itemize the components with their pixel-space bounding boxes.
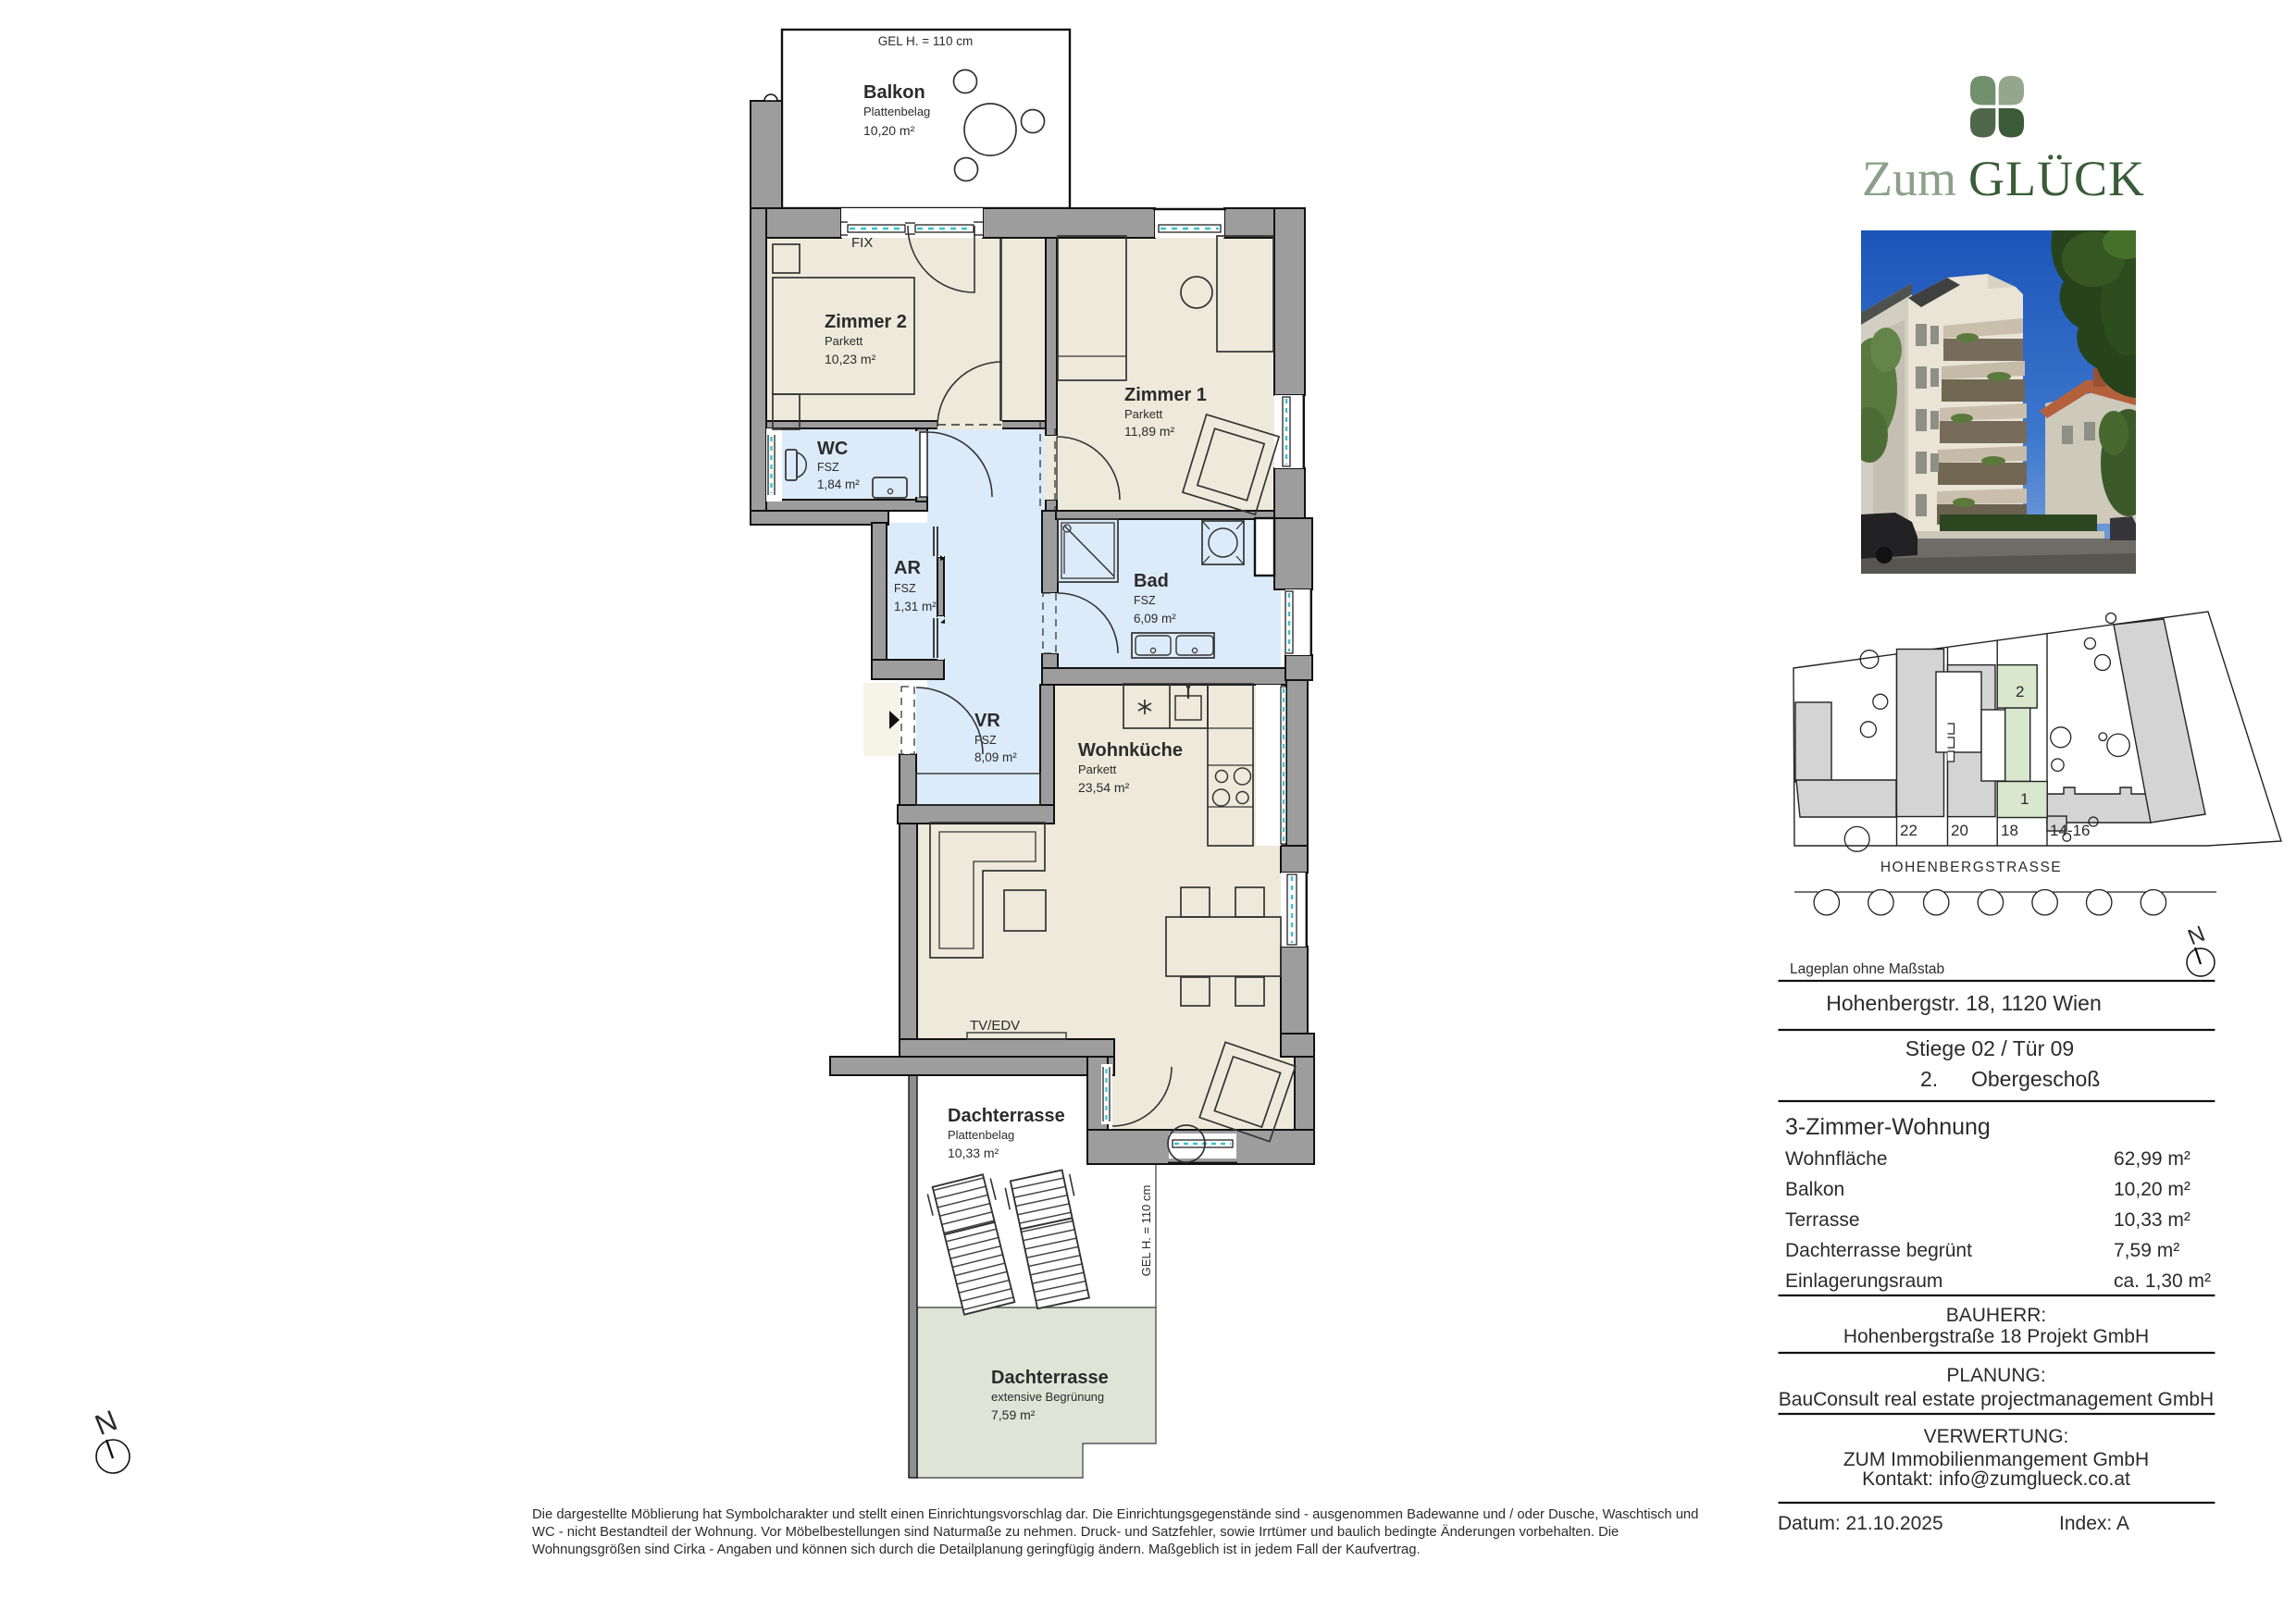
svg-text:10,33 m²: 10,33 m² bbox=[2114, 1209, 2191, 1231]
svg-text:ca. 1,30 m²: ca. 1,30 m² bbox=[2114, 1270, 2211, 1292]
svg-text:Balkon: Balkon bbox=[1785, 1179, 1844, 1200]
svg-text:2.: 2. bbox=[1920, 1067, 1938, 1091]
svg-text:10,20 m²: 10,20 m² bbox=[2114, 1179, 2191, 1200]
svg-text:Die dargestellte Möblierung ha: Die dargestellte Möblierung hat Symbolch… bbox=[532, 1507, 1698, 1522]
svg-text:62,99 m²: 62,99 m² bbox=[2114, 1148, 2191, 1170]
svg-text:Hohenbergstraße 18 Projekt Gmb: Hohenbergstraße 18 Projekt GmbH bbox=[1843, 1326, 2149, 1347]
svg-text:Einlagerungsraum: Einlagerungsraum bbox=[1785, 1270, 1942, 1292]
svg-text:Obergeschoß: Obergeschoß bbox=[1971, 1067, 2100, 1091]
svg-text:PLANUNG:: PLANUNG: bbox=[1946, 1365, 2045, 1386]
svg-text:Wohnfläche: Wohnfläche bbox=[1785, 1148, 1888, 1170]
svg-text:Dachterrasse begrünt: Dachterrasse begrünt bbox=[1785, 1240, 1972, 1261]
svg-text:Terrasse: Terrasse bbox=[1785, 1209, 1860, 1231]
svg-text:7,59 m²: 7,59 m² bbox=[2114, 1240, 2179, 1261]
svg-text:BauConsult real estate project: BauConsult real estate projectmanagement… bbox=[1779, 1389, 2214, 1410]
svg-text:Hohenbergstr. 18, 1120 Wien: Hohenbergstr. 18, 1120 Wien bbox=[1826, 991, 2101, 1015]
svg-text:WC - nicht Bestandteil der Woh: WC - nicht Bestandteil der Wohnung. Vor … bbox=[532, 1524, 1619, 1540]
svg-text:BAUHERR:: BAUHERR: bbox=[1946, 1305, 2047, 1326]
svg-text:ZUM Immobilienmangement GmbH: ZUM Immobilienmangement GmbH bbox=[1843, 1449, 2149, 1470]
svg-text:Kontakt: info@zumglueck.co.at: Kontakt: info@zumglueck.co.at bbox=[1862, 1468, 2130, 1490]
svg-text:3-Zimmer-Wohnung: 3-Zimmer-Wohnung bbox=[1785, 1114, 1991, 1140]
svg-text:Wohnungsgrößen sind Cirka - An: Wohnungsgrößen sind Cirka - Angaben und … bbox=[532, 1542, 1421, 1557]
svg-text:Index: A: Index: A bbox=[2059, 1513, 2129, 1534]
svg-text:VERWERTUNG:: VERWERTUNG: bbox=[1924, 1426, 2069, 1447]
svg-text:Stiege 02 / Tür 09: Stiege 02 / Tür 09 bbox=[1905, 1036, 2074, 1060]
svg-text:Datum: 21.10.2025: Datum: 21.10.2025 bbox=[1778, 1513, 1943, 1534]
